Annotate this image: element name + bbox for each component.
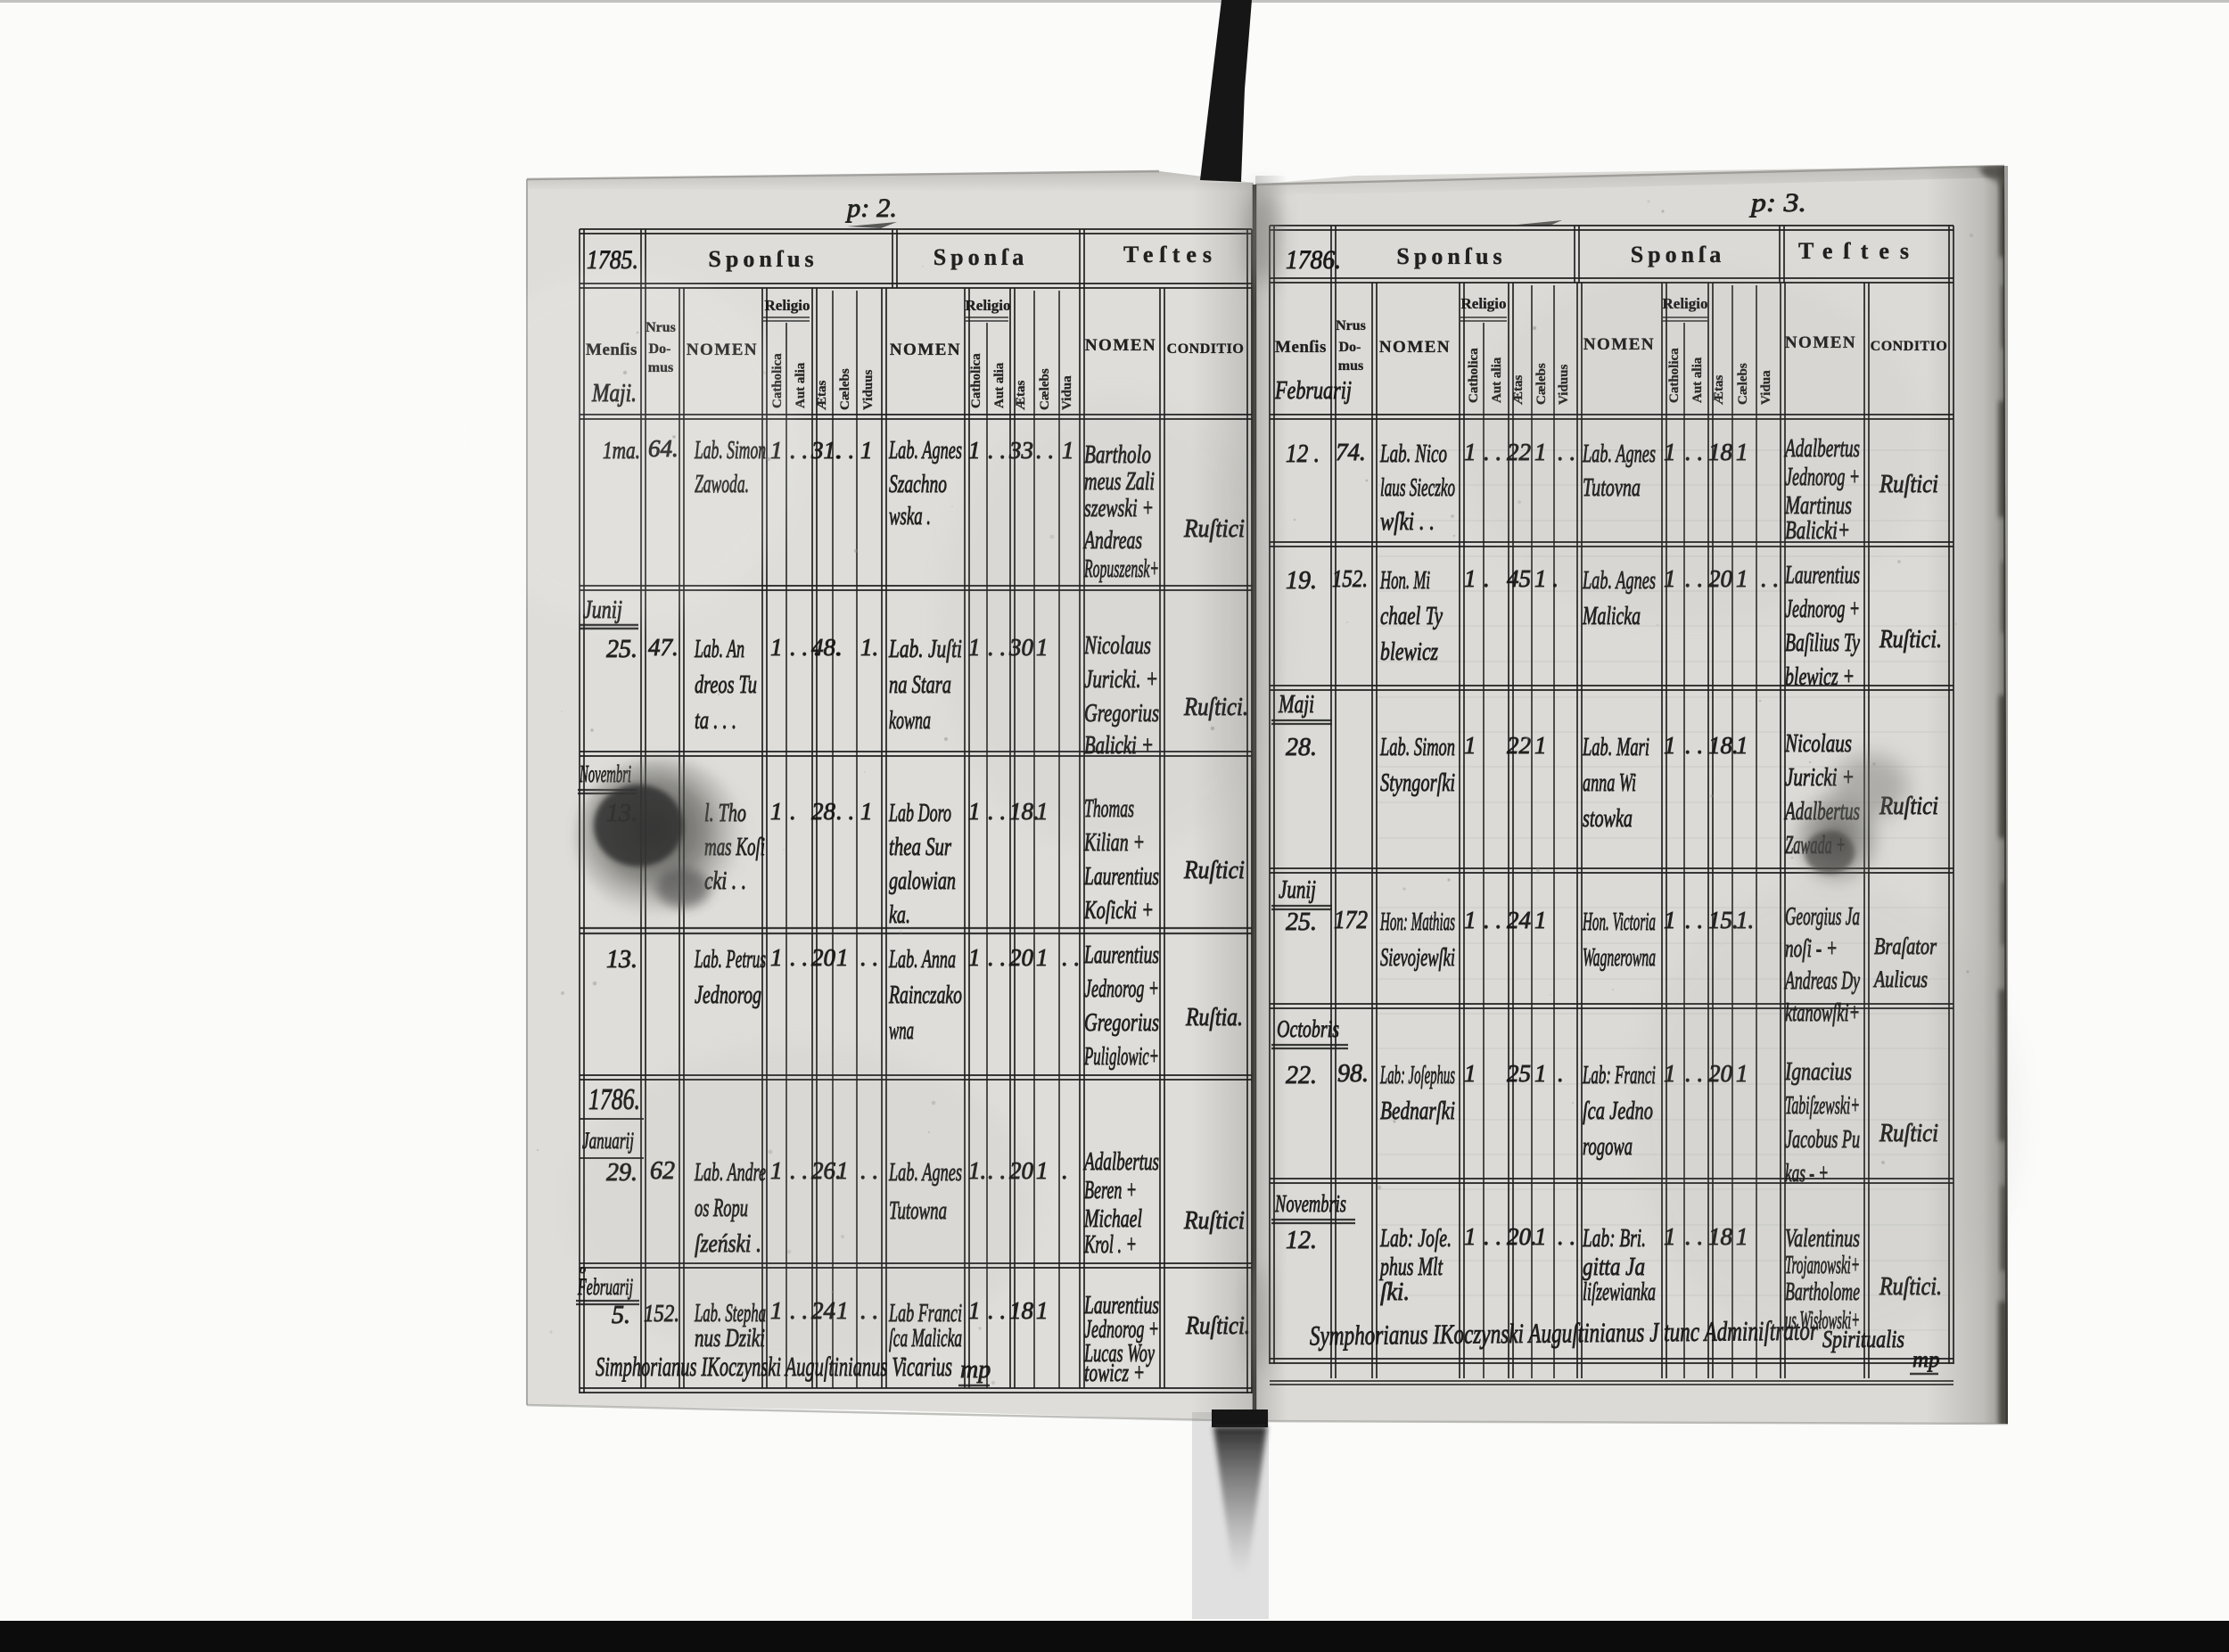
svg-text:p: 3.: p: 3. <box>1749 188 1806 218</box>
svg-text:74.: 74. <box>1336 439 1366 465</box>
svg-text:. .: . . <box>836 437 854 464</box>
svg-text:Do-: Do- <box>1339 340 1361 355</box>
svg-text:20.: 20. <box>1507 1223 1537 1250</box>
svg-text:47.: 47. <box>648 634 679 661</box>
svg-text:Ruſtici: Ruſtici <box>1183 857 1245 884</box>
svg-text:Hon. Victoria: Hon. Victoria <box>1582 908 1656 936</box>
svg-text:Ruſtici.: Ruſtici. <box>1879 626 1942 653</box>
svg-text:28.: 28. <box>1286 734 1317 761</box>
svg-text:Octobris: Octobris <box>1277 1015 1339 1042</box>
svg-text:dreos Tu: dreos Tu <box>695 671 757 699</box>
svg-text:laus Sieczko: laus Sieczko <box>1380 474 1455 502</box>
svg-text:towicz +: towicz + <box>1084 1360 1145 1387</box>
svg-text:Lab Doro: Lab Doro <box>888 800 951 827</box>
svg-text:13.: 13. <box>606 946 637 974</box>
svg-text:stowka: stowka <box>1583 805 1633 833</box>
svg-text:Aut alia: Aut alia <box>992 362 1007 408</box>
svg-text:28: 28 <box>811 798 836 825</box>
svg-text:1: 1 <box>1464 1223 1476 1250</box>
svg-text:Februarij: Februarij <box>1274 377 1352 405</box>
svg-text:98.: 98. <box>1337 1060 1369 1088</box>
svg-text:1: 1 <box>1736 732 1748 759</box>
svg-text:Nrus: Nrus <box>1336 318 1366 333</box>
svg-text:1: 1 <box>1036 944 1049 971</box>
svg-text:1: 1 <box>1534 907 1547 933</box>
svg-text:1: 1 <box>1464 907 1476 933</box>
svg-text:Ætas: Ætas <box>815 381 829 410</box>
svg-text:.: . <box>1062 1157 1068 1184</box>
svg-text:1: 1 <box>968 944 981 971</box>
svg-text:1: 1 <box>770 798 783 825</box>
svg-text:1: 1 <box>860 437 873 464</box>
svg-text:phus Mlt: phus Mlt <box>1379 1253 1444 1281</box>
svg-text:thea Sur: thea Sur <box>889 834 951 861</box>
svg-text:Sponſus: Sponſus <box>708 246 818 272</box>
svg-text:1: 1 <box>1464 732 1476 759</box>
svg-text:1.: 1. <box>860 634 878 661</box>
svg-text:NOMEN: NOMEN <box>1379 338 1451 357</box>
svg-text:wſki . .: wſki . . <box>1380 508 1435 536</box>
svg-text:. .: . . <box>1484 907 1501 933</box>
svg-text:1: 1 <box>770 634 783 661</box>
svg-text:Teſtes: Teſtes <box>1123 242 1218 267</box>
svg-text:Jednorog: Jednorog <box>695 982 761 1009</box>
svg-text:Lab: Joſephus: Lab: Joſephus <box>1379 1062 1455 1089</box>
svg-text:Lab. Nico: Lab. Nico <box>1379 440 1447 468</box>
svg-text:1: 1 <box>968 437 981 464</box>
svg-text:. .: . . <box>988 944 1006 971</box>
svg-text:22: 22 <box>1507 732 1531 759</box>
svg-text:1: 1 <box>836 944 849 971</box>
svg-text:25.: 25. <box>1286 908 1317 936</box>
svg-text:1: 1 <box>860 798 873 825</box>
svg-text:Religio: Religio <box>966 297 1011 314</box>
svg-text:18: 18 <box>1009 1297 1034 1324</box>
svg-text:gitta Ja: gitta Ja <box>1583 1253 1645 1281</box>
svg-text:Ruſtici: Ruſtici <box>1183 1207 1245 1235</box>
svg-text:anna Wi: anna Wi <box>1583 769 1636 797</box>
svg-text:Novembris: Novembris <box>1274 1190 1346 1217</box>
svg-text:Sponſus: Sponſus <box>1396 243 1506 269</box>
svg-text:Jednorog +: Jednorog + <box>1084 975 1159 1003</box>
svg-text:.: . <box>790 798 796 825</box>
svg-text:Beren +: Beren + <box>1084 1177 1137 1204</box>
svg-text:blewicz: blewicz <box>1380 638 1438 666</box>
svg-text:Cælebs: Cælebs <box>1038 368 1052 410</box>
svg-text:ta . . .: ta . . . <box>695 707 736 735</box>
svg-text:mp: mp <box>1912 1348 1940 1372</box>
svg-text:1: 1 <box>1534 1060 1547 1087</box>
svg-text:1: 1 <box>770 944 783 971</box>
svg-text:Lab. Simon: Lab. Simon <box>1379 734 1455 761</box>
svg-text:Michael: Michael <box>1083 1205 1142 1233</box>
svg-text:Ætas: Ætas <box>1014 381 1028 410</box>
svg-text:wska .: wska . <box>889 503 931 530</box>
svg-text:. .: . . <box>988 1297 1006 1324</box>
svg-text:1: 1 <box>1464 565 1476 592</box>
svg-text:Koſicki +: Koſicki + <box>1083 897 1154 925</box>
svg-text:Lab. Anna: Lab. Anna <box>888 946 956 974</box>
svg-text:Krol . +: Krol . + <box>1083 1231 1137 1259</box>
svg-text:Sponſa: Sponſa <box>1631 242 1726 267</box>
svg-text:p: 2.: p: 2. <box>845 193 897 223</box>
svg-text:Cælebs: Cælebs <box>838 368 852 410</box>
svg-text:Sponſa: Sponſa <box>934 244 1029 270</box>
svg-text:Laurentius: Laurentius <box>1083 941 1159 969</box>
svg-text:Gregorius: Gregorius <box>1084 1009 1159 1037</box>
svg-text:. .: . . <box>790 944 808 971</box>
svg-text:Religio: Religio <box>1461 295 1507 312</box>
svg-text:Sievojewſki: Sievojewſki <box>1380 944 1455 972</box>
svg-text:18.: 18. <box>1708 732 1739 759</box>
svg-text:. .: . . <box>1685 907 1703 933</box>
svg-text:1: 1 <box>1664 732 1676 759</box>
svg-text:Baſilius Ty: Baſilius Ty <box>1785 629 1860 657</box>
svg-text:25: 25 <box>1507 1060 1531 1087</box>
svg-text:Hon: Mathias: Hon: Mathias <box>1379 908 1455 936</box>
svg-text:Lab: Joſe.: Lab: Joſe. <box>1379 1225 1452 1253</box>
svg-text:Lab. Agnes: Lab. Agnes <box>888 437 962 464</box>
svg-text:Religio: Religio <box>765 297 810 314</box>
svg-text:chael Ty: chael Ty <box>1380 603 1443 630</box>
svg-text:20: 20 <box>1009 944 1034 971</box>
svg-text:NOMEN: NOMEN <box>890 341 961 359</box>
svg-text:Nicolaus: Nicolaus <box>1784 730 1852 758</box>
svg-text:Catholica: Catholica <box>969 353 983 408</box>
svg-text:NOMEN: NOMEN <box>1085 336 1156 355</box>
svg-text:1: 1 <box>1534 732 1547 759</box>
svg-text:.: . <box>1484 565 1490 592</box>
svg-text:152.: 152. <box>1332 565 1368 592</box>
svg-text:Rainczako: Rainczako <box>888 982 962 1009</box>
svg-text:.: . <box>836 634 843 661</box>
svg-text:Hon. Mi: Hon. Mi <box>1379 567 1430 595</box>
svg-text:Lab. An: Lab. An <box>694 636 744 663</box>
svg-text:ſki.: ſki. <box>1380 1278 1410 1306</box>
svg-text:wna: wna <box>889 1017 914 1045</box>
svg-text:Adalbertus: Adalbertus <box>1083 1148 1159 1176</box>
svg-text:25.: 25. <box>606 636 637 663</box>
svg-text:Lab. Mari: Lab. Mari <box>1582 734 1649 761</box>
svg-text:kowna: kowna <box>889 707 931 735</box>
svg-text:1: 1 <box>968 798 981 825</box>
svg-text:Junij: Junij <box>1279 876 1316 904</box>
svg-text:Wagnerowna: Wagnerowna <box>1583 944 1656 972</box>
svg-text:1: 1 <box>1036 1157 1049 1184</box>
svg-text:. .: . . <box>836 798 854 825</box>
svg-text:1: 1 <box>1534 1223 1547 1250</box>
svg-text:CONDITIO: CONDITIO <box>1167 341 1245 357</box>
svg-text:12 .: 12 . <box>1286 440 1320 468</box>
svg-text:mus: mus <box>1338 358 1363 374</box>
svg-text:liſzewianka: liſzewianka <box>1583 1278 1656 1306</box>
svg-text:Styngorſki: Styngorſki <box>1380 769 1455 797</box>
svg-text:Szachno: Szachno <box>889 471 947 498</box>
svg-text:Ruſtici.: Ruſtici. <box>1185 1312 1250 1340</box>
svg-text:Ruſtia.: Ruſtia. <box>1185 1004 1243 1031</box>
svg-text:Menſis: Menſis <box>1275 338 1327 357</box>
svg-text:22.: 22. <box>1286 1062 1317 1089</box>
svg-text:blewicz +: blewicz + <box>1785 663 1855 691</box>
svg-text:20: 20 <box>811 944 836 971</box>
svg-text:Lab. Petrus: Lab. Petrus <box>694 946 766 974</box>
svg-text:mp: mp <box>960 1356 991 1384</box>
svg-text:. .: . . <box>1062 944 1080 971</box>
svg-text:. .: . . <box>860 944 878 971</box>
svg-text:ka.: ka. <box>889 901 910 929</box>
svg-text:.: . <box>1558 1060 1564 1087</box>
svg-text:. .: . . <box>1484 1223 1501 1250</box>
svg-text:1: 1 <box>1664 907 1676 933</box>
svg-text:1786.: 1786. <box>1286 245 1341 275</box>
svg-text:. .: . . <box>1558 1223 1575 1250</box>
svg-text:1: 1 <box>1464 1060 1476 1087</box>
svg-text:172: 172 <box>1334 907 1368 934</box>
svg-text:Lab: Bri.: Lab: Bri. <box>1582 1225 1646 1253</box>
svg-text:Viduus: Viduus <box>861 370 876 410</box>
svg-text:12.: 12. <box>1286 1227 1317 1254</box>
svg-text:1: 1 <box>1036 1297 1049 1324</box>
svg-text:24: 24 <box>1507 907 1531 933</box>
svg-text:Puliglowic+: Puliglowic+ <box>1083 1043 1159 1071</box>
svg-text:. .: . . <box>1685 732 1703 759</box>
svg-text:Laurentius: Laurentius <box>1083 863 1159 891</box>
svg-text:rogowa: rogowa <box>1583 1133 1633 1161</box>
svg-text:Bednarſki: Bednarſki <box>1380 1097 1455 1125</box>
svg-text:galowian: galowian <box>889 867 956 895</box>
svg-text:Teſtes: Teſtes <box>1798 238 1920 264</box>
